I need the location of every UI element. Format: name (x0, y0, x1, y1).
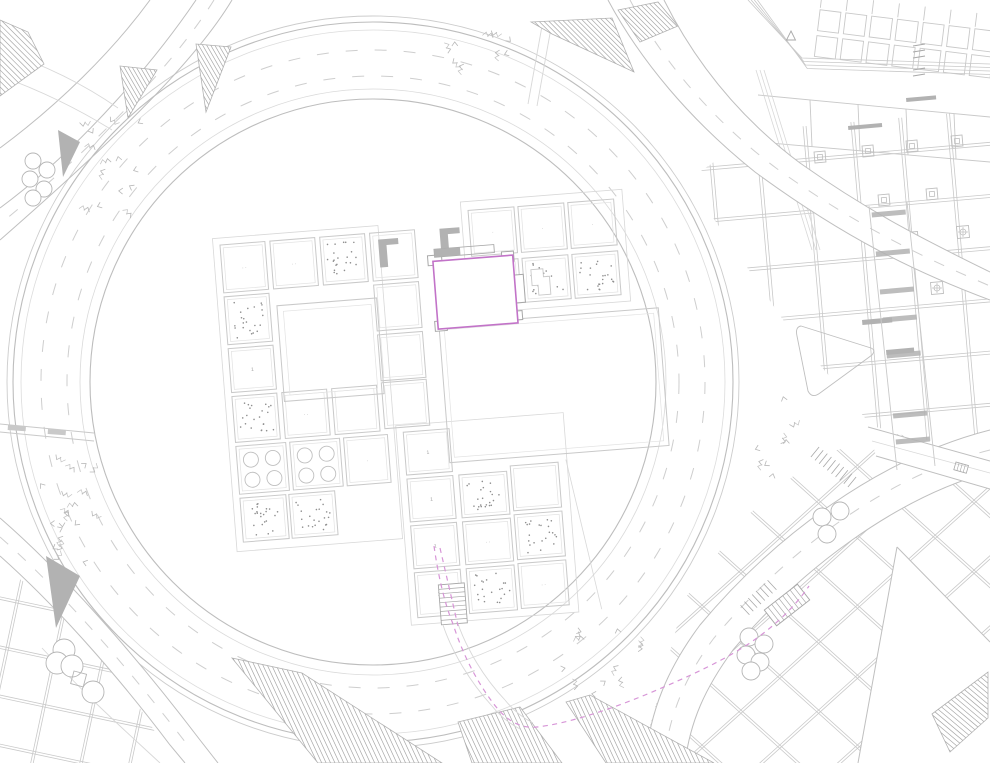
planter-cell: · (343, 434, 391, 485)
svg-text:· ·: · · (486, 539, 492, 545)
tree-cluster-bottom-right-b (737, 628, 773, 680)
planter-cell: · · (518, 560, 569, 609)
site-plan-viewport[interactable]: · ·· ·1· ·····1111· ·· · (0, 0, 990, 763)
planter-cell (370, 230, 419, 281)
svg-text:1: 1 (430, 497, 433, 503)
planter-cell (236, 442, 290, 494)
hatched-island (0, 0, 90, 126)
planter-cell (522, 255, 571, 302)
svg-text:1: 1 (426, 450, 429, 456)
planter-cell: · (468, 207, 517, 256)
planter-cell (224, 293, 273, 344)
grass-marks (754, 396, 801, 478)
grass-marks (79, 117, 143, 218)
escalator-block (378, 238, 400, 267)
planter-cell (381, 379, 429, 428)
planter-cell (320, 234, 369, 285)
planter-cell: · (518, 203, 567, 252)
svg-text:· ·: · · (242, 265, 248, 271)
svg-text:· ·: · · (541, 582, 547, 588)
triangle-symbol (787, 31, 796, 40)
planter-cell (572, 251, 621, 298)
planter-cell: 1 (407, 475, 456, 521)
planter-cell (290, 438, 344, 490)
planter-cell: 1 (403, 429, 452, 475)
planter-cell (332, 385, 380, 434)
planter-cell (459, 471, 510, 518)
svg-text:·: · (591, 222, 593, 228)
planter-cell: 1 (411, 522, 460, 568)
central-lawn (439, 308, 669, 463)
site-plan-canvas[interactable]: · ·· ·1· ·····1111· ·· · (0, 0, 990, 763)
planter-cell (378, 331, 426, 380)
planter-cell (510, 462, 561, 511)
planter-cell (232, 393, 280, 442)
svg-text:·: · (492, 230, 494, 236)
svg-text:· ·: · · (292, 261, 298, 267)
svg-text:·: · (366, 458, 368, 464)
planter-cell: · · (270, 238, 319, 289)
svg-text:1: 1 (251, 367, 254, 373)
hatched-island (173, 548, 500, 763)
gray-median-fill (58, 130, 80, 177)
planter-cell: 1 (228, 345, 276, 392)
svg-text:·: · (542, 226, 544, 232)
planter-cell (240, 495, 289, 542)
tree-cluster-top-left (22, 153, 55, 206)
planter-cell (374, 282, 422, 331)
planter-cell (514, 511, 565, 560)
planter-cell: · · (462, 518, 513, 565)
planter-cell: · · (220, 242, 269, 293)
svg-text:· ·: · · (303, 412, 309, 418)
planter-cell (289, 491, 338, 538)
highlighted-building-footprint (433, 255, 518, 329)
planter-cell: · · (282, 389, 330, 438)
rounded-traffic-island (797, 326, 874, 396)
grass-marks (561, 628, 645, 698)
planter-cell (466, 565, 517, 614)
planter-cell: · (568, 199, 617, 248)
